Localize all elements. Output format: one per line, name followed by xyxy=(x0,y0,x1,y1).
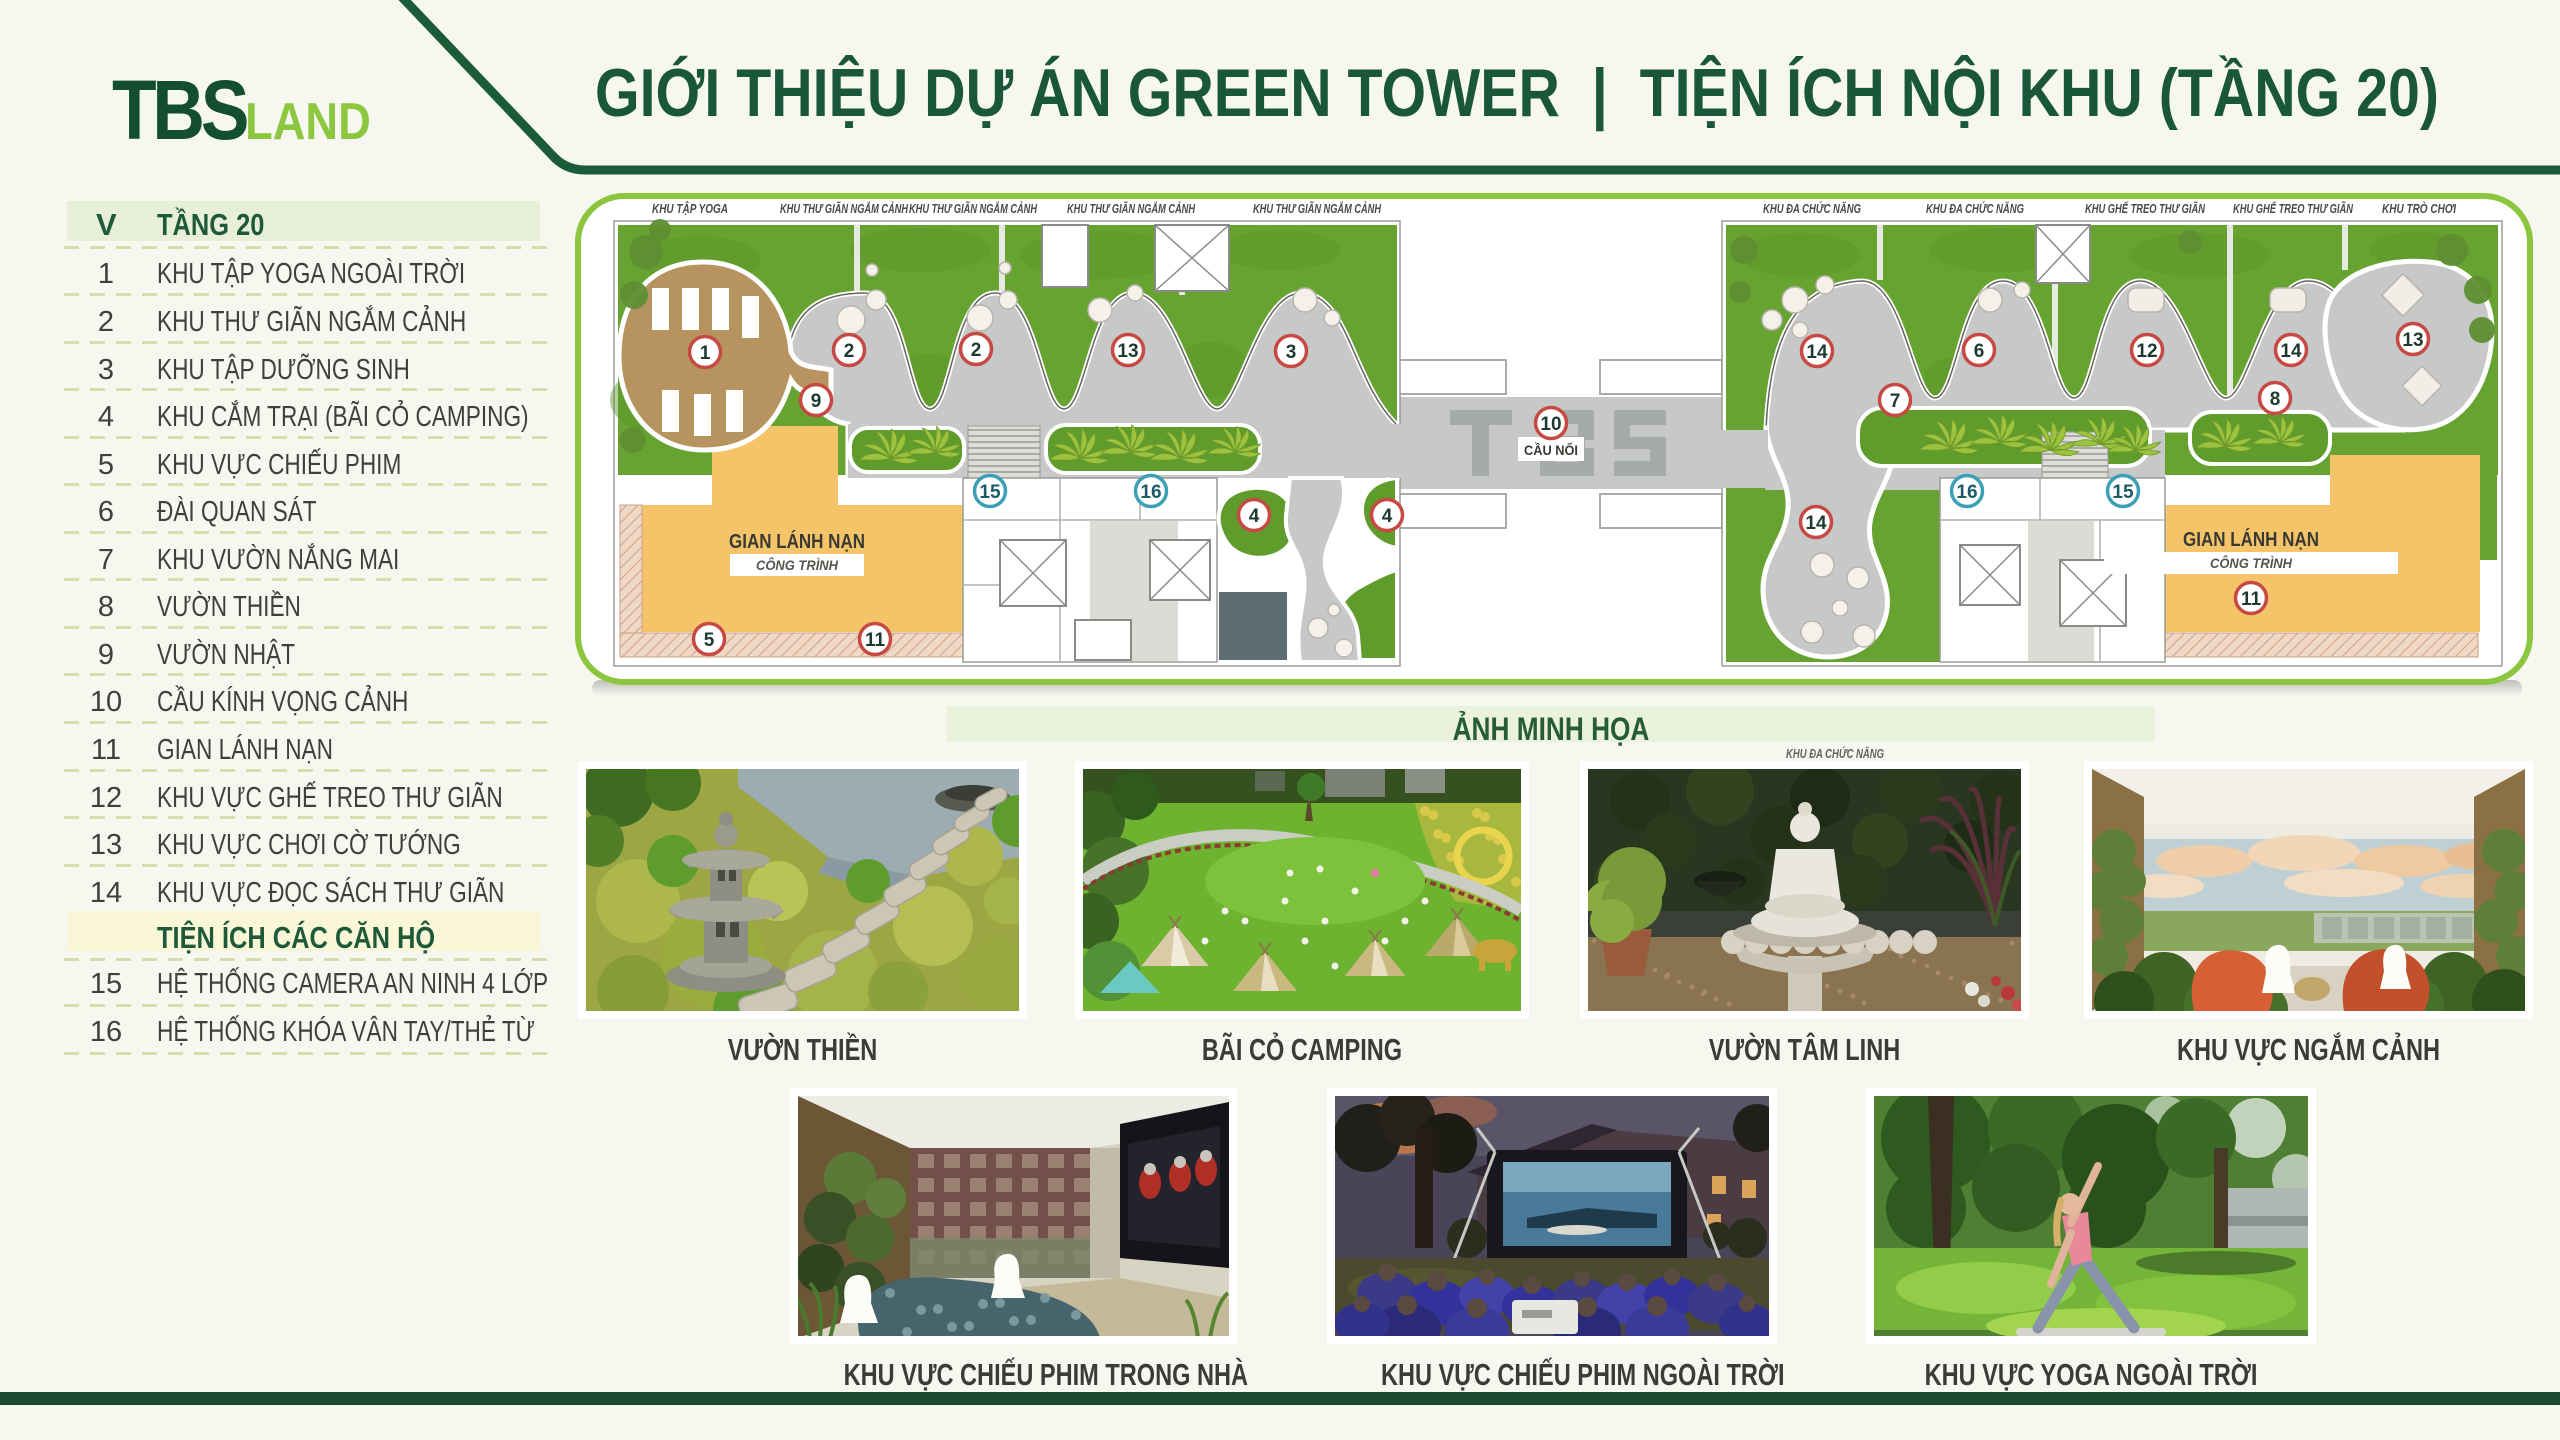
svg-text:11: 11 xyxy=(865,630,886,651)
svg-text:GIAN LÁNH NẠN: GIAN LÁNH NẠN xyxy=(729,530,865,553)
svg-text:10: 10 xyxy=(1540,414,1561,435)
svg-text:KHU GHẾ TREO THƯ GIÃN: KHU GHẾ TREO THƯ GIÃN xyxy=(2085,201,2205,216)
svg-text:KHU THƯ GIÃN NGẮM CẢNH: KHU THƯ GIÃN NGẮM CẢNH xyxy=(909,201,1037,216)
svg-text:2: 2 xyxy=(971,340,982,361)
svg-text:3: 3 xyxy=(1286,342,1297,363)
svg-text:KHU ĐA CHỨC NĂNG: KHU ĐA CHỨC NĂNG xyxy=(1763,201,1861,216)
svg-text:GIAN LÁNH NẠN: GIAN LÁNH NẠN xyxy=(2183,528,2319,551)
svg-text:CẦU NỐI: CẦU NỐI xyxy=(1524,441,1578,458)
svg-text:6: 6 xyxy=(1974,341,1985,362)
svg-text:13: 13 xyxy=(2402,330,2423,351)
svg-text:4: 4 xyxy=(1249,506,1260,527)
svg-text:15: 15 xyxy=(979,482,1001,503)
svg-text:11: 11 xyxy=(2241,589,2262,610)
svg-text:KHU TẬP YOGA: KHU TẬP YOGA xyxy=(652,201,728,216)
svg-text:16: 16 xyxy=(1140,482,1161,503)
svg-text:CÔNG TRÌNH: CÔNG TRÌNH xyxy=(756,556,839,573)
svg-text:14: 14 xyxy=(1806,342,1828,363)
svg-text:12: 12 xyxy=(2136,341,2157,362)
svg-text:4: 4 xyxy=(1382,506,1393,527)
svg-text:CÔNG TRÌNH: CÔNG TRÌNH xyxy=(2210,554,2293,571)
svg-text:KHU THƯ GIÃN NGẮM CẢNH: KHU THƯ GIÃN NGẮM CẢNH xyxy=(1253,201,1381,216)
svg-text:KHU GHẾ TREO THƯ GIÃN: KHU GHẾ TREO THƯ GIÃN xyxy=(2233,201,2353,216)
svg-text:14: 14 xyxy=(1805,513,1827,534)
svg-text:KHU THƯ GIÃN NGẮM CẢNH: KHU THƯ GIÃN NGẮM CẢNH xyxy=(780,201,908,216)
svg-text:KHU TRÒ CHƠI: KHU TRÒ CHƠI xyxy=(2382,201,2456,216)
svg-text:8: 8 xyxy=(2270,389,2281,410)
svg-text:15: 15 xyxy=(2112,482,2134,503)
svg-text:2: 2 xyxy=(844,341,855,362)
svg-text:13: 13 xyxy=(1117,341,1138,362)
svg-text:KHU THƯ GIÃN NGẮM CẢNH: KHU THƯ GIÃN NGẮM CẢNH xyxy=(1067,201,1195,216)
svg-text:KHU ĐA CHỨC NĂNG: KHU ĐA CHỨC NĂNG xyxy=(1926,201,2024,216)
svg-text:9: 9 xyxy=(811,391,822,412)
svg-text:KHU ĐA CHỨC NĂNG: KHU ĐA CHỨC NĂNG xyxy=(1786,746,1884,761)
svg-text:1: 1 xyxy=(700,343,711,364)
svg-text:16: 16 xyxy=(1956,482,1977,503)
svg-text:5: 5 xyxy=(704,630,715,651)
svg-text:14: 14 xyxy=(2280,341,2302,362)
svg-text:7: 7 xyxy=(1890,391,1901,412)
